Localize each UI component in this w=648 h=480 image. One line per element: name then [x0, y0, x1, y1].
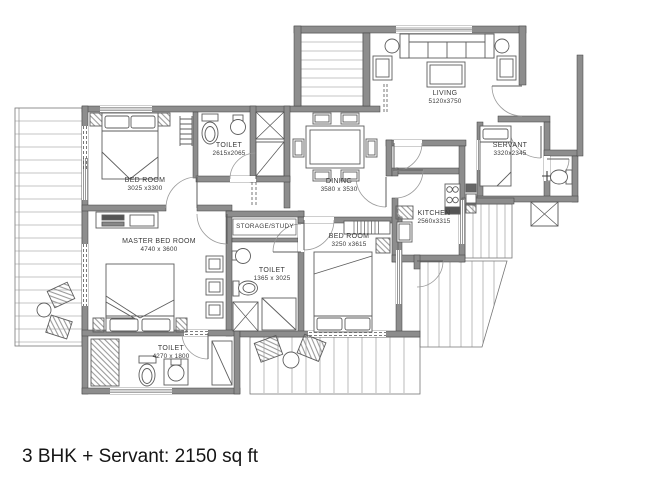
room-label-toilet3: TOILET 4270 x 1800	[153, 344, 190, 362]
deck-chair-icon	[46, 315, 72, 339]
sink-icon	[396, 206, 413, 242]
shower-icon	[262, 298, 296, 330]
chair-icon	[206, 256, 223, 272]
double-bed-icon	[106, 264, 174, 332]
room-label-kitchen: KITCHEN 2560x3315	[418, 209, 451, 227]
room-label-storage-study: STORAGE/STUDY	[236, 223, 294, 232]
dining-table-icon	[293, 113, 377, 181]
armchair-icon	[497, 56, 516, 80]
bedroom1-furniture	[90, 113, 192, 179]
nightstand-icon	[176, 318, 187, 332]
nightstand-icon	[90, 113, 102, 126]
floor-plan-page: LIVING 5120x3750 DINING 3580 x 3530 BED …	[0, 0, 648, 480]
towel-ladder-icon	[180, 116, 192, 146]
lift-shaft-icon	[256, 112, 284, 139]
room-label-master-bedroom: MASTER BED ROOM 4740 x 3600	[122, 237, 196, 255]
sofa-icon	[400, 34, 494, 58]
coffee-table-icon	[427, 62, 465, 87]
nightstand-icon	[93, 318, 104, 332]
deck-chair-icon	[254, 335, 282, 362]
washbasin-icon	[164, 359, 188, 385]
toilet1-fixtures	[202, 114, 246, 144]
living-furniture	[373, 34, 516, 87]
walls	[82, 26, 583, 394]
nightstand-icon	[376, 238, 390, 253]
bathtub-icon	[91, 339, 119, 386]
double-bed-icon	[314, 252, 372, 332]
armchair-icon	[373, 56, 392, 80]
round-table-icon	[283, 352, 299, 368]
room-label-toilet1: TOILET 2615x2065	[213, 141, 246, 159]
shower-icon	[212, 341, 232, 385]
master-bedroom-furniture	[93, 212, 223, 332]
bottom-balcony-chairs	[254, 334, 326, 368]
washbasin-icon	[231, 115, 246, 135]
deck-chair-icon	[47, 282, 75, 308]
room-label-dining: DINING 3580 x 3530	[321, 177, 358, 195]
round-table-icon	[37, 303, 51, 317]
double-bed-icon	[102, 113, 158, 179]
floor-plan-drawing	[0, 0, 648, 480]
deck-chair-icon	[297, 334, 326, 361]
plan-caption: 3 BHK + Servant: 2150 sq ft	[22, 446, 258, 468]
servant-wc-icon	[551, 170, 573, 184]
wc-icon	[202, 114, 218, 144]
side-table-icon	[385, 39, 399, 53]
room-label-servant: SERVANT 3320x2345	[493, 141, 528, 159]
chair-icon	[206, 302, 223, 318]
duct-shaft-icon	[233, 302, 258, 331]
balcony-top-deck	[301, 33, 363, 106]
chair-icon	[206, 279, 223, 295]
washbasin-icon	[232, 249, 251, 264]
side-table-icon	[495, 39, 509, 53]
service-lift-icon	[531, 202, 558, 226]
balcony-bottom-right-deck	[420, 261, 507, 347]
room-label-toilet2: TOILET 1365 x 3025	[254, 266, 291, 284]
nightstand-icon	[158, 113, 170, 126]
room-label-bedroom1: BED ROOM 3025 x3300	[125, 176, 166, 194]
service-duct-icon	[466, 184, 476, 213]
left-balcony-chairs	[37, 282, 75, 339]
room-label-living: LIVING 5120x3750	[429, 89, 462, 107]
stair-shaft-icon	[256, 142, 284, 176]
dresser-icon	[96, 212, 158, 228]
room-label-bedroom2: BED ROOM 3250 x3615	[329, 232, 370, 250]
